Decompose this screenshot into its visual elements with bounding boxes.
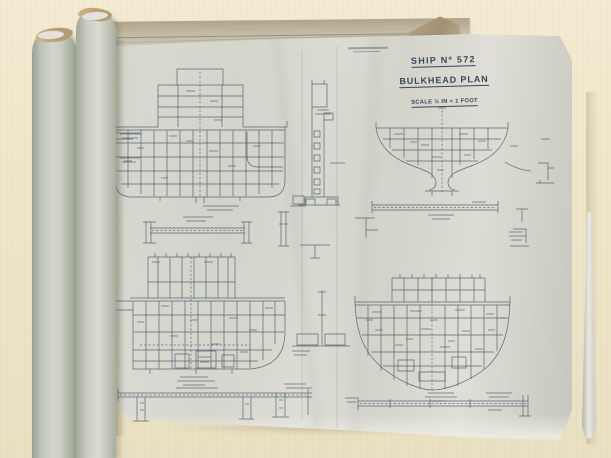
drawing-girder-detail-upper bbox=[143, 212, 289, 246]
drawing-upper-right-bulkhead-section bbox=[372, 106, 508, 219]
vertical-stiffeners bbox=[146, 301, 275, 369]
bottom-details bbox=[150, 351, 234, 374]
paper-roll-left-inner bbox=[76, 14, 116, 458]
caption-marks bbox=[203, 206, 239, 210]
drawing-stiffener-detail-center bbox=[292, 218, 378, 402]
under-sheet-drawn-line bbox=[108, 34, 452, 43]
ship-number-title: SHIP Nº 572 bbox=[411, 55, 476, 68]
corner-bracket bbox=[355, 218, 378, 238]
drawing-lower-right-bulkhead-section bbox=[355, 274, 510, 401]
trunk-lines bbox=[148, 257, 235, 298]
drawing-right-margin-details bbox=[505, 139, 554, 246]
caption-marks bbox=[177, 377, 215, 385]
caption-marks bbox=[183, 217, 288, 224]
drawing-upper-left-bulkhead-section bbox=[113, 69, 287, 210]
trunk-lines bbox=[158, 85, 243, 127]
title-block: SHIP Nº 572 BULKHEAD PLAN SCALE ½ IN = 1… bbox=[391, 50, 497, 112]
stamp-line bbox=[353, 50, 380, 52]
scale-note: SCALE ½ IN = 1 FOOT bbox=[411, 98, 478, 108]
annotation-marks bbox=[137, 262, 273, 362]
annotation-marks bbox=[394, 134, 486, 170]
office-stamp bbox=[348, 45, 394, 58]
girder-lines bbox=[143, 212, 289, 246]
drawing-lower-left-bulkhead-section bbox=[112, 253, 285, 388]
caption-marks bbox=[428, 202, 486, 219]
horizontal-girders bbox=[133, 315, 285, 361]
sheet-right-roll-top bbox=[549, 29, 576, 86]
drawing-bottom-strip-left bbox=[118, 384, 312, 421]
stamp-line bbox=[348, 47, 388, 49]
detail-strip bbox=[372, 201, 498, 213]
bottom-details bbox=[398, 357, 466, 381]
horizontal-girders bbox=[357, 318, 508, 366]
strip-lines bbox=[118, 389, 312, 421]
t-bar-detail bbox=[300, 245, 330, 258]
vertical-stiffeners bbox=[368, 305, 497, 389]
plan-name-title: BULKHEAD PLAN bbox=[399, 75, 488, 89]
top-ticks bbox=[155, 253, 231, 257]
sheet-crease-line bbox=[302, 46, 337, 428]
lightening-holes bbox=[314, 131, 320, 194]
paper-roll-left-outer bbox=[32, 33, 77, 458]
top-ticks bbox=[400, 274, 480, 278]
stiffener-with-feet bbox=[292, 290, 350, 346]
photo-of-blueprint-scene: SHIP Nº 572 BULKHEAD PLAN SCALE ½ IN = 1… bbox=[0, 0, 611, 458]
section-outline bbox=[355, 278, 510, 390]
annotation-marks bbox=[486, 393, 512, 410]
annotation-marks bbox=[366, 310, 506, 349]
strip-lines bbox=[358, 395, 531, 416]
section-outline bbox=[112, 257, 285, 369]
annotation-marks bbox=[509, 139, 550, 240]
margin-brackets bbox=[505, 162, 554, 246]
trunk-lines bbox=[392, 278, 485, 302]
